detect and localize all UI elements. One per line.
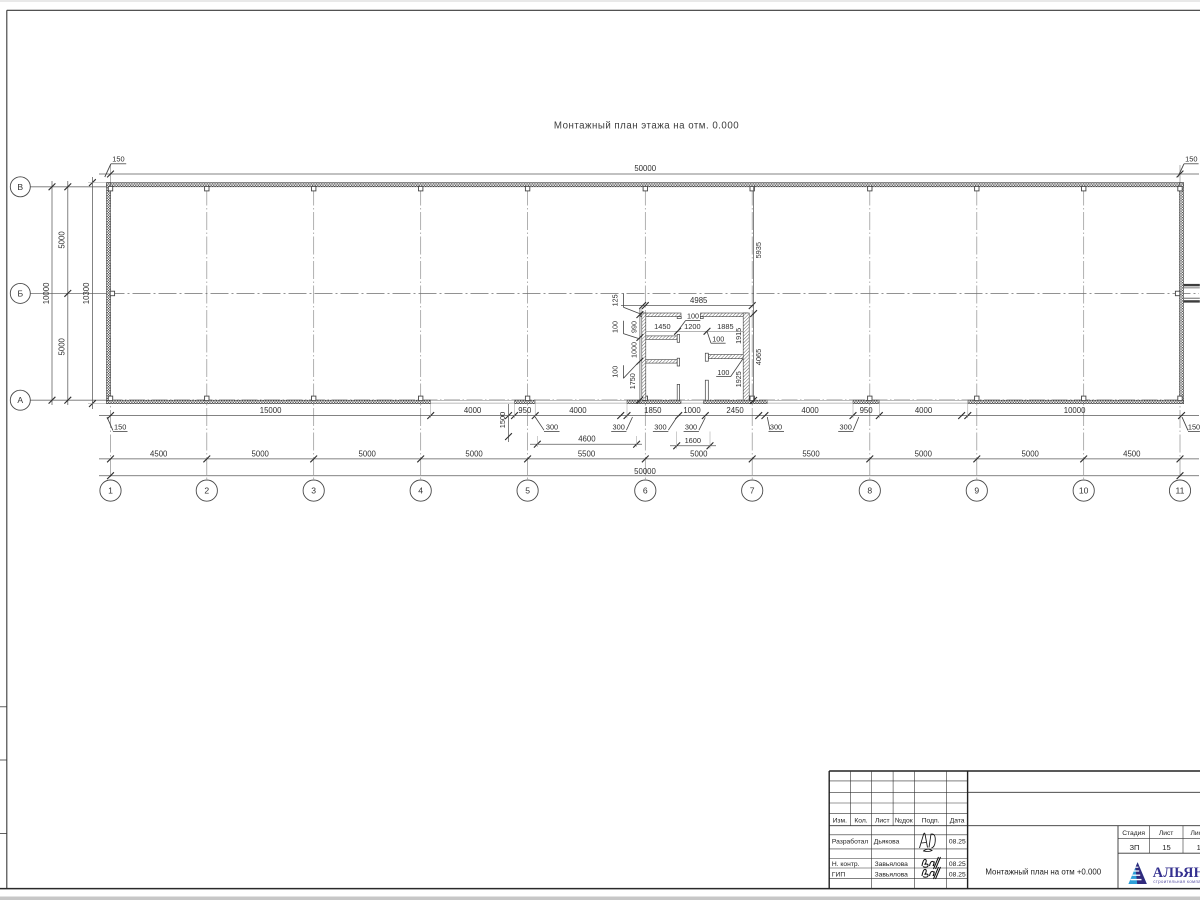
svg-text:2: 2 <box>204 486 209 496</box>
svg-text:Дата: Дата <box>950 818 965 825</box>
svg-text:Завьялова: Завьялова <box>875 871 909 878</box>
svg-text:300: 300 <box>770 423 782 432</box>
svg-text:9: 9 <box>974 486 979 496</box>
svg-text:150: 150 <box>1188 423 1200 432</box>
svg-text:15: 15 <box>1162 843 1170 852</box>
svg-text:Подп.: Подп. <box>922 818 940 825</box>
svg-text:Лист: Лист <box>875 818 890 825</box>
svg-text:Дьякова: Дьякова <box>874 839 900 846</box>
svg-text:4000: 4000 <box>801 406 819 415</box>
svg-text:Завьялова: Завьялова <box>875 861 909 868</box>
svg-text:Кол.: Кол. <box>854 818 867 825</box>
svg-text:1750: 1750 <box>628 373 637 389</box>
svg-text:150: 150 <box>1185 155 1197 164</box>
svg-text:950: 950 <box>518 406 532 415</box>
svg-text:Н. контр.: Н. контр. <box>832 861 860 868</box>
svg-text:№док: №док <box>895 818 913 825</box>
svg-text:11: 11 <box>1176 486 1185 496</box>
svg-text:1: 1 <box>108 486 113 496</box>
svg-text:150: 150 <box>114 423 126 432</box>
svg-text:Лист: Лист <box>1191 830 1200 837</box>
svg-text:Монтажный план этажа на отм. 0: Монтажный план этажа на отм. 0.000 <box>554 120 739 131</box>
svg-text:5000: 5000 <box>57 337 66 355</box>
svg-text:5000: 5000 <box>1022 449 1040 458</box>
svg-text:1600: 1600 <box>685 436 701 445</box>
svg-text:7: 7 <box>750 486 755 496</box>
svg-text:4500: 4500 <box>150 449 168 458</box>
svg-text:10000: 10000 <box>1064 406 1086 415</box>
svg-text:В: В <box>17 182 23 192</box>
svg-text:08.25: 08.25 <box>949 871 966 878</box>
svg-text:Монтажный план на отм +0.000: Монтажный план на отм +0.000 <box>985 868 1101 877</box>
svg-text:100: 100 <box>687 312 699 321</box>
svg-text:10000: 10000 <box>42 282 51 304</box>
svg-text:1915: 1915 <box>734 328 743 344</box>
svg-text:4500: 4500 <box>1123 449 1141 458</box>
svg-text:Изм.: Изм. <box>833 818 847 825</box>
svg-text:10300: 10300 <box>82 282 91 304</box>
svg-text:1500: 1500 <box>498 412 507 428</box>
svg-text:ЗП: ЗП <box>1129 843 1139 852</box>
svg-text:300: 300 <box>613 423 625 432</box>
svg-text:5000: 5000 <box>915 449 933 458</box>
svg-text:строительная компания: строительная компания <box>1153 879 1200 884</box>
svg-text:4000: 4000 <box>464 406 482 415</box>
svg-text:Б: Б <box>17 288 23 298</box>
svg-text:4065: 4065 <box>754 349 763 365</box>
svg-text:5000: 5000 <box>359 449 377 458</box>
svg-text:10: 10 <box>1079 486 1089 496</box>
svg-text:3: 3 <box>311 486 316 496</box>
svg-text:4985: 4985 <box>690 296 708 305</box>
svg-text:50000: 50000 <box>634 164 656 173</box>
svg-text:950: 950 <box>860 406 874 415</box>
svg-text:300: 300 <box>546 423 558 432</box>
svg-text:300: 300 <box>685 423 697 432</box>
svg-text:ГИП: ГИП <box>832 871 845 878</box>
svg-text:4000: 4000 <box>915 406 933 415</box>
svg-text:1000: 1000 <box>683 406 701 415</box>
svg-text:08.25: 08.25 <box>949 861 966 868</box>
svg-text:150: 150 <box>112 155 124 164</box>
svg-text:5: 5 <box>525 486 530 496</box>
svg-text:100: 100 <box>717 368 729 377</box>
svg-text:5000: 5000 <box>465 449 483 458</box>
svg-text:Разработал: Разработал <box>832 838 868 846</box>
svg-text:4600: 4600 <box>578 435 596 444</box>
svg-text:100: 100 <box>611 366 620 378</box>
svg-text:4000: 4000 <box>569 406 587 415</box>
svg-text:5500: 5500 <box>802 449 820 458</box>
svg-text:А: А <box>17 395 23 405</box>
svg-text:100: 100 <box>712 334 724 343</box>
svg-text:125: 125 <box>611 294 620 306</box>
svg-text:Стадия: Стадия <box>1122 830 1145 837</box>
svg-text:Лист: Лист <box>1159 830 1174 837</box>
svg-text:8: 8 <box>867 486 872 496</box>
svg-text:2450: 2450 <box>726 406 744 415</box>
svg-text:5000: 5000 <box>252 449 270 458</box>
svg-text:1925: 1925 <box>734 371 743 387</box>
svg-text:5500: 5500 <box>578 449 596 458</box>
svg-text:5935: 5935 <box>754 242 763 258</box>
svg-text:1450: 1450 <box>654 322 670 331</box>
svg-text:990: 990 <box>630 321 639 333</box>
svg-text:1885: 1885 <box>717 322 733 331</box>
svg-text:5000: 5000 <box>57 231 66 249</box>
svg-text:08.25: 08.25 <box>949 839 966 846</box>
svg-text:100: 100 <box>611 321 620 333</box>
svg-text:1850: 1850 <box>644 406 662 415</box>
svg-text:6: 6 <box>643 486 648 496</box>
svg-text:15000: 15000 <box>260 406 282 415</box>
svg-text:300: 300 <box>840 423 852 432</box>
svg-text:1000: 1000 <box>630 342 639 358</box>
svg-text:5000: 5000 <box>690 449 708 458</box>
svg-text:4: 4 <box>418 486 423 496</box>
svg-text:300: 300 <box>654 423 666 432</box>
svg-text:1200: 1200 <box>684 322 700 331</box>
svg-text:50000: 50000 <box>634 467 656 476</box>
